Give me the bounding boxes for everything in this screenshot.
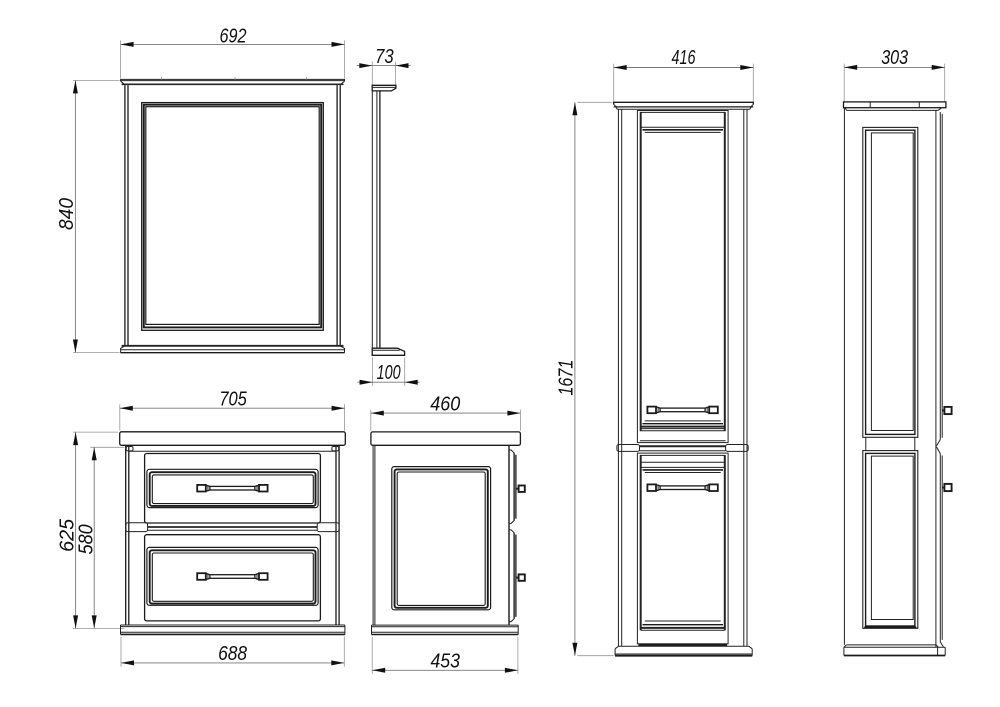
svg-text:460: 460 — [430, 392, 461, 415]
svg-text:73: 73 — [375, 45, 394, 68]
svg-text:100: 100 — [377, 361, 401, 384]
svg-text:580: 580 — [74, 524, 97, 555]
svg-text:840: 840 — [55, 197, 78, 230]
svg-text:453: 453 — [430, 649, 460, 672]
svg-text:705: 705 — [219, 387, 247, 410]
svg-text:416: 416 — [672, 46, 696, 69]
svg-text:1671: 1671 — [555, 360, 578, 396]
svg-text:692: 692 — [220, 25, 247, 48]
svg-text:303: 303 — [881, 46, 908, 69]
svg-text:688: 688 — [218, 642, 247, 665]
